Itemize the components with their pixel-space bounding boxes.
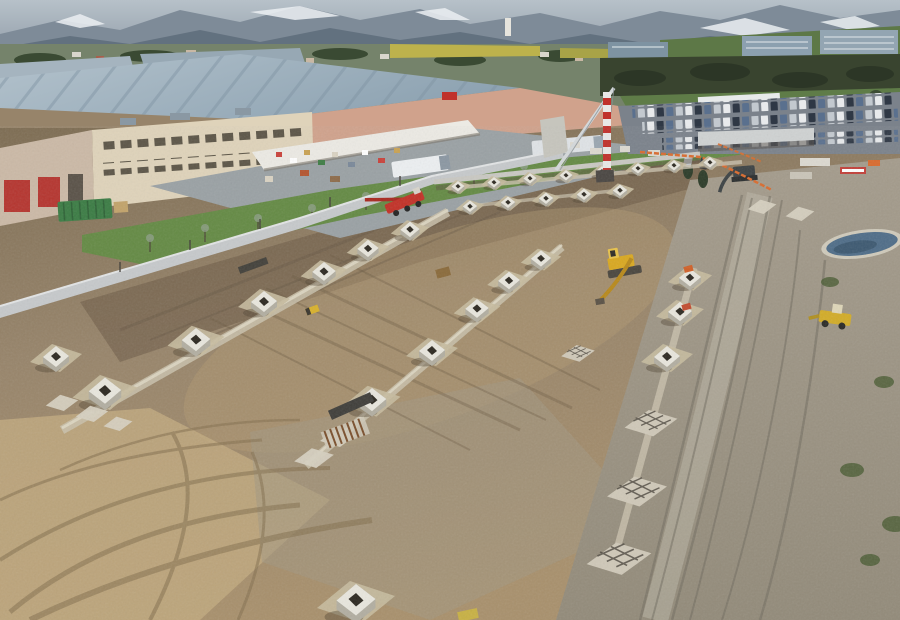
noise-overlay xyxy=(0,126,900,620)
aerial-construction-photo xyxy=(0,0,900,620)
brand-sign xyxy=(442,92,457,100)
campanile-tower xyxy=(505,18,511,36)
